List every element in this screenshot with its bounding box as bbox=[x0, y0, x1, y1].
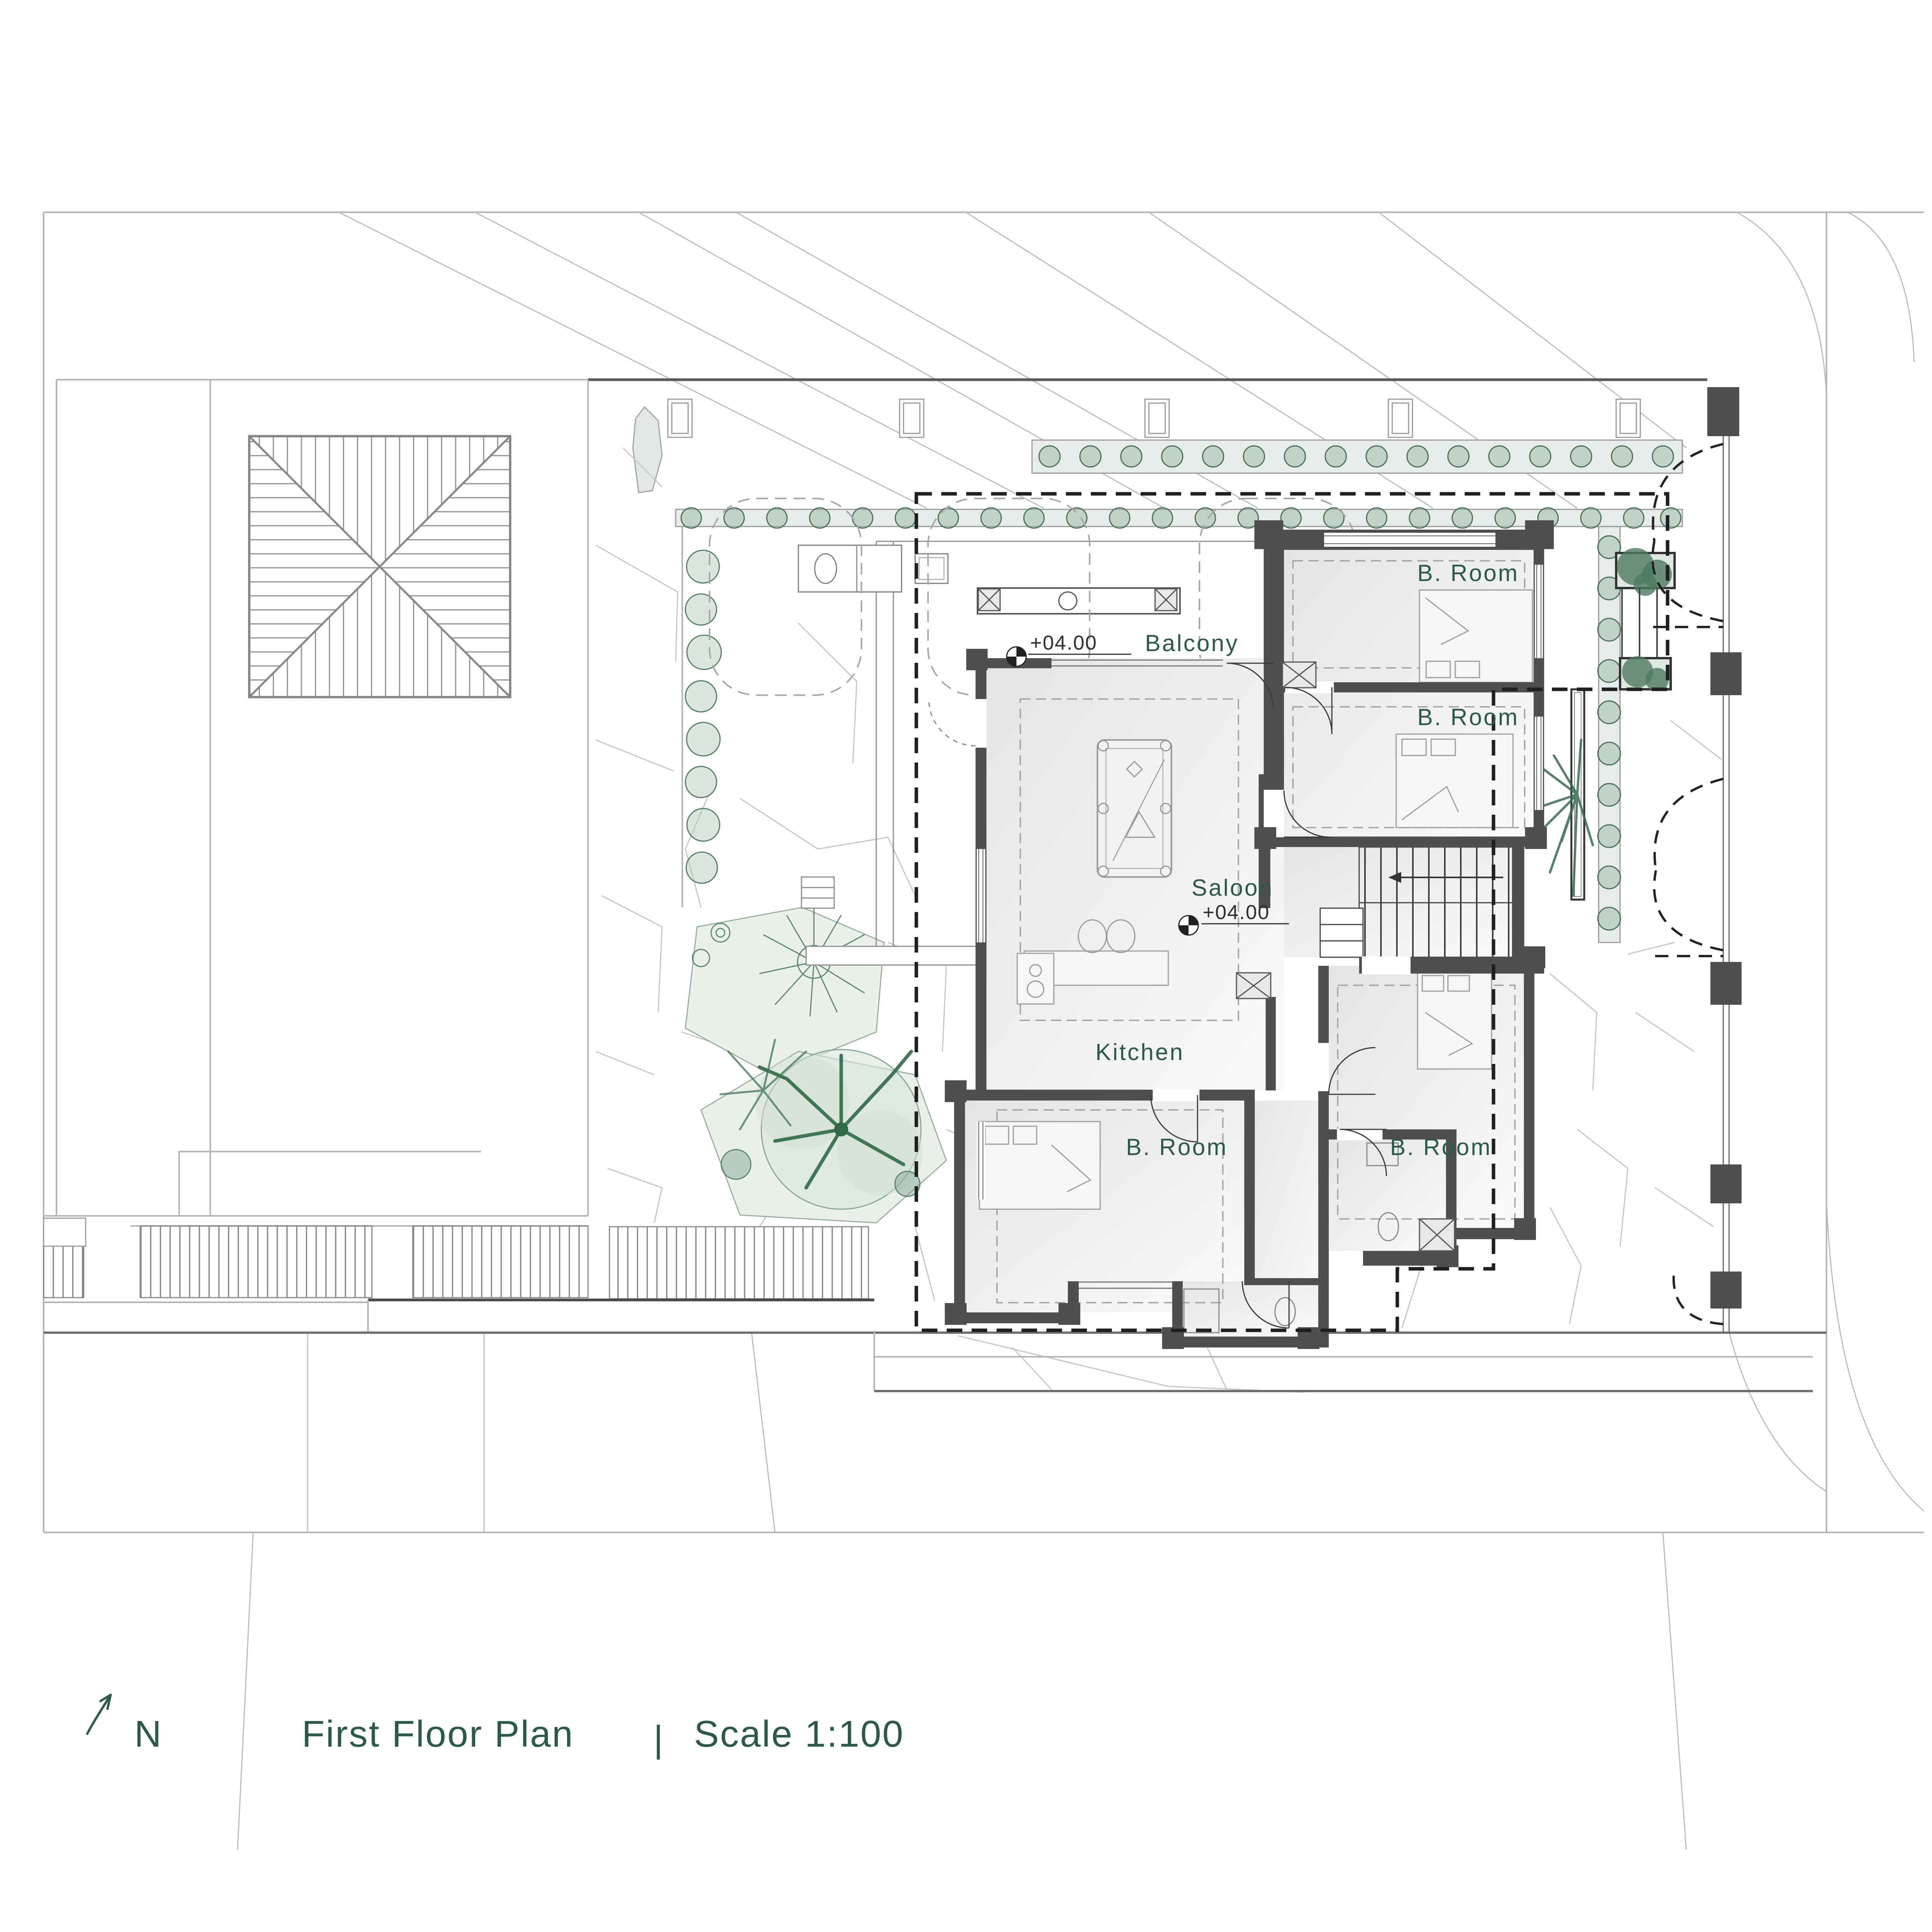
room-label-bedroom-1: B. Room bbox=[1417, 560, 1519, 586]
house bbox=[929, 520, 1554, 1349]
title-separator: | bbox=[653, 1718, 664, 1760]
saloon-level-text: +04.00 bbox=[1203, 901, 1270, 924]
planter-box-left bbox=[44, 1218, 86, 1246]
fence-posts bbox=[1707, 387, 1742, 1309]
first-floor-plan-drawing: +04.00 Balcony Saloon +04.00 B. Room B. … bbox=[0, 0, 1932, 1932]
bed-bedroom-2 bbox=[1396, 734, 1513, 828]
north-arrow-icon bbox=[87, 1695, 111, 1734]
bed-bedroom-3 bbox=[1418, 972, 1492, 1069]
bed-bedroom-4 bbox=[979, 1122, 1100, 1209]
boundary-posts-top bbox=[668, 399, 1640, 437]
room-label-bedroom-4: B. Room bbox=[1126, 1134, 1228, 1160]
bbq-counter bbox=[798, 545, 902, 592]
rock-feature bbox=[633, 407, 662, 493]
terrace-ledge bbox=[806, 946, 997, 965]
north-label: N bbox=[134, 1713, 162, 1755]
garden-bed-upper bbox=[685, 907, 884, 1075]
steps-strip-left bbox=[140, 1226, 372, 1298]
balcony-level-text: +04.00 bbox=[1030, 632, 1097, 654]
shrub-icon bbox=[721, 1150, 751, 1179]
planter-strip-upper bbox=[1032, 440, 1682, 473]
steps-strip-mid bbox=[413, 1226, 588, 1298]
steps-strip-plot bbox=[609, 1227, 868, 1299]
neighbour-plot bbox=[44, 380, 588, 1298]
title-block: N First Floor Plan | Scale 1:100 bbox=[87, 1695, 904, 1760]
room-label-balcony: Balcony bbox=[1145, 630, 1239, 656]
bed-bedroom-1 bbox=[1420, 590, 1532, 682]
garden-bed-lower bbox=[701, 1040, 946, 1223]
scale-label: Scale 1:100 bbox=[694, 1713, 904, 1755]
room-label-kitchen: Kitchen bbox=[1095, 1039, 1184, 1065]
room-label-saloon: Saloon bbox=[1192, 875, 1274, 901]
terrace-steps bbox=[801, 877, 834, 908]
steps-strip-far-left bbox=[44, 1246, 84, 1298]
neighbour-building-line bbox=[179, 1152, 481, 1216]
plan-title: First Floor Plan bbox=[302, 1713, 574, 1755]
stair-lower-steps bbox=[1320, 908, 1363, 957]
hip-roof bbox=[249, 436, 510, 697]
hedge-column bbox=[682, 527, 721, 907]
balcony-planter-bench bbox=[977, 588, 1180, 614]
trellis-lines bbox=[1622, 588, 1657, 658]
room-label-bedroom-2: B. Room bbox=[1417, 704, 1519, 730]
room-label-bedroom-3: B. Room bbox=[1390, 1134, 1492, 1160]
terrace-edge-lines bbox=[44, 1216, 588, 1226]
billiard-table bbox=[1097, 740, 1171, 877]
right-planters bbox=[1530, 527, 1675, 942]
